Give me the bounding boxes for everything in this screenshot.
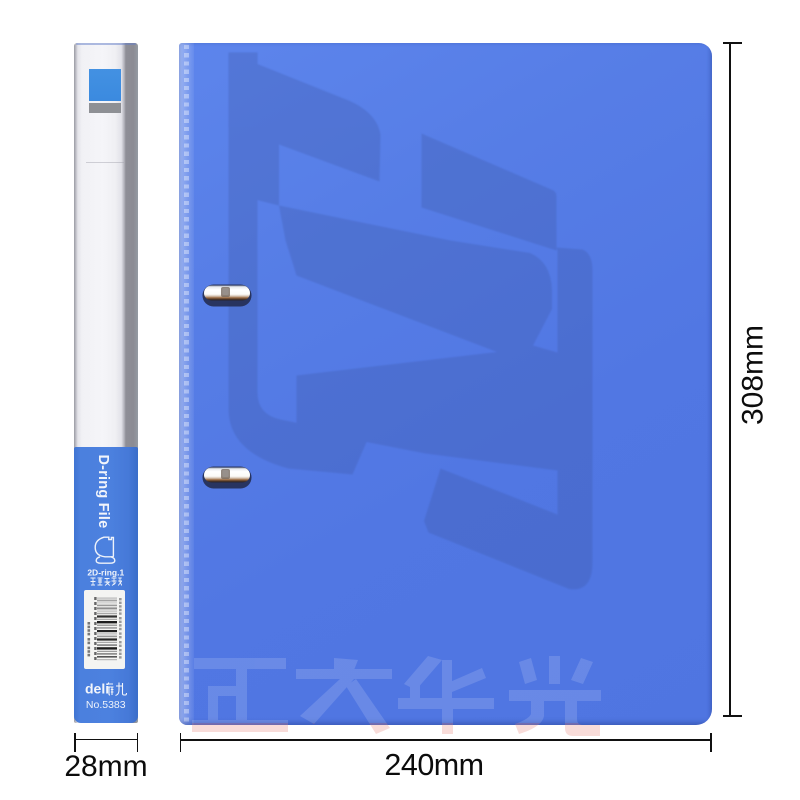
svg-text:240mm: 240mm [384, 748, 483, 782]
svg-text:28mm: 28mm [64, 750, 147, 783]
svg-text:308mm: 308mm [737, 325, 770, 425]
